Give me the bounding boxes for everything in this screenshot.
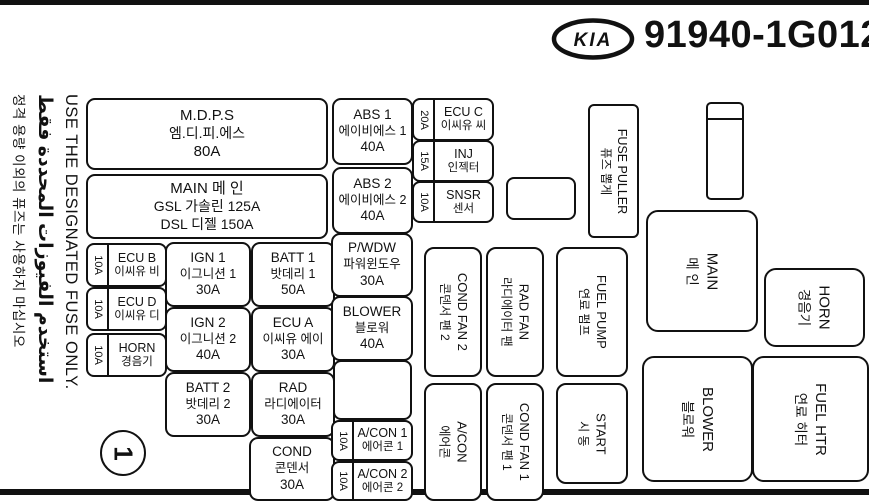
fuse-name: COND bbox=[272, 444, 312, 461]
relay-korean: 에어콘 bbox=[438, 425, 452, 458]
fuse-horn: 10A HORN 경음기 bbox=[86, 333, 167, 377]
fuse-ecu-a: ECU A 이씨유 에이 30A bbox=[251, 307, 335, 372]
fuse-ecu-c: 20A ECU C 이씨유 씨 bbox=[412, 98, 494, 141]
fuse-name: INJ bbox=[454, 147, 473, 162]
relay-korean: 콘덴서 팬 2 bbox=[438, 283, 452, 341]
fuse-korean: 밧데리 1 bbox=[271, 267, 316, 283]
amp-rating: 20A bbox=[414, 100, 435, 139]
relay-korean: 메 인 bbox=[685, 257, 700, 286]
fuse-cond: COND 콘덴서 30A bbox=[249, 437, 335, 501]
fuse-ecu-d: 10A ECU D 이씨유 디 bbox=[86, 287, 167, 331]
fuse-name: A/CON 1 bbox=[357, 426, 407, 441]
empty-fuse-slot bbox=[333, 360, 412, 420]
fuse-mdps: M.D.P.S 엠.디.피.에스 80A bbox=[86, 98, 328, 170]
fuse-amp: 30A bbox=[360, 273, 384, 290]
fuse-korean: 이그니션 1 bbox=[180, 267, 236, 283]
fuse-name: A/CON 2 bbox=[357, 467, 407, 482]
relay-name: FUEL PUMP bbox=[594, 275, 609, 349]
fuse-acon2: 10A A/CON 2 에어콘 2 bbox=[331, 461, 413, 501]
fuse-korean: 경음기 bbox=[121, 356, 153, 370]
relay-cond-fan-2: COND FAN 2 콘덴서 팬 2 bbox=[424, 247, 482, 377]
relay-name: HORN bbox=[816, 285, 833, 329]
relay-korean: 블로워 bbox=[680, 400, 695, 437]
fuse-korean: 이씨유 비 bbox=[114, 266, 160, 280]
kia-logo-text: KIA bbox=[574, 30, 613, 51]
fuse-korean: 에어콘 2 bbox=[362, 482, 403, 496]
fuse-korean: 에어콘 1 bbox=[362, 441, 403, 455]
fuse-main: MAIN 메 인 GSL 가솔린 125A DSL 디젤 150A bbox=[86, 174, 328, 239]
fuse-korean: 이그니션 2 bbox=[180, 332, 236, 348]
fuse-rad: RAD 라디에이터 30A bbox=[251, 372, 335, 437]
fuse-ecu-b: 10A ECU B 이씨유 비 bbox=[86, 243, 167, 287]
amp-rating: 10A bbox=[88, 335, 109, 375]
fuse-amp: 40A bbox=[360, 139, 384, 156]
relay-korean: 시 동 bbox=[577, 421, 591, 446]
circled-1-marker: 1 bbox=[100, 430, 146, 476]
amp-rating: 10A bbox=[88, 289, 109, 329]
fuse-name: SNSR bbox=[446, 188, 481, 203]
amp-rating: 10A bbox=[333, 422, 354, 459]
fuse-box-diagram: KIA 91940-1G012 USE THE DESIGNATED FUSE … bbox=[0, 0, 869, 502]
fuse-korean: 파워윈도우 bbox=[343, 257, 401, 273]
fuse-name: MAIN 메 인 bbox=[170, 180, 243, 199]
fuse-name: BATT 2 bbox=[186, 380, 231, 397]
fuse-name: RAD bbox=[279, 380, 308, 397]
relay-name: COND FAN 1 bbox=[517, 403, 532, 481]
empty-relay-slot bbox=[506, 177, 576, 220]
fuse-snsr: 10A SNSR 센서 bbox=[412, 181, 494, 223]
fuse-abs2: ABS 2 에이비에스 2 40A bbox=[332, 167, 413, 234]
relay-name: FUEL HTR bbox=[812, 383, 829, 456]
relay-korean: 연료 히터 bbox=[794, 392, 809, 445]
relay-name: RAD FAN bbox=[517, 284, 532, 340]
warning-korean: 정격 용량 이외의 퓨즈는 사용하지 마십시오 bbox=[5, 94, 31, 406]
relay-main: MAIN 메 인 bbox=[646, 210, 758, 332]
relay-rad-fan: RAD FAN 라디에이터 팬 bbox=[486, 247, 544, 377]
fuse-name: IGN 1 bbox=[190, 250, 225, 267]
fuse-acon1: 10A A/CON 1 에어콘 1 bbox=[331, 420, 413, 461]
relay-fuel-pump: FUEL PUMP 연료 펌프 bbox=[556, 247, 628, 377]
fuse-name: HORN bbox=[119, 341, 156, 356]
amp-rating: 15A bbox=[414, 142, 435, 180]
fuse-batt1: BATT 1 밧데리 1 50A bbox=[251, 242, 335, 307]
fuse-amp: 40A bbox=[360, 336, 384, 353]
relay-name: MAIN bbox=[704, 252, 721, 290]
page-marker-number: 1 bbox=[108, 446, 139, 460]
relay-name: A/CON bbox=[455, 421, 470, 462]
fuse-korean: 밧데리 2 bbox=[186, 397, 231, 413]
top-border-line bbox=[0, 0, 869, 5]
fuse-name: BATT 1 bbox=[271, 250, 316, 267]
fuse-amp: 40A bbox=[196, 347, 220, 364]
part-number: 91940-1G012 bbox=[644, 14, 869, 57]
fuse-name: P/WDW bbox=[348, 240, 396, 257]
fuse-korean: 블로워 bbox=[355, 321, 390, 337]
relay-korean: 라디에이터 팬 bbox=[500, 277, 514, 347]
relay-name: BLOWER bbox=[699, 386, 716, 451]
fuse-ign1: IGN 1 이그니션 1 30A bbox=[165, 242, 251, 307]
fuse-puller-korean: 퓨즈 뽑게 bbox=[599, 147, 613, 195]
fuse-amp: 30A bbox=[281, 412, 305, 429]
fuse-korean: 라디에이터 bbox=[264, 397, 322, 413]
fuse-korean: 에이비에스 1 bbox=[339, 124, 407, 140]
fuse-korean: 이씨유 에이 bbox=[263, 332, 324, 348]
fuse-korean: 센서 bbox=[453, 203, 474, 217]
amp-rating: 10A bbox=[88, 245, 109, 285]
fuse-abs1: ABS 1 에이비에스 1 40A bbox=[332, 98, 413, 165]
fuse-ign2: IGN 2 이그니션 2 40A bbox=[165, 307, 251, 372]
relay-name: START bbox=[594, 413, 609, 454]
kia-logo: KIA bbox=[550, 16, 636, 67]
fuse-amp: 80A bbox=[194, 143, 221, 162]
warning-text: USE THE DESIGNATED FUSE ONLY. استخدم الف… bbox=[4, 94, 84, 406]
relay-korean: 경음기 bbox=[797, 289, 812, 326]
fuse-amp: 30A bbox=[281, 347, 305, 364]
fuse-batt2: BATT 2 밧데리 2 30A bbox=[165, 372, 251, 437]
relay-korean: 콘덴서 팬 1 bbox=[500, 413, 514, 471]
fuse-amp: 40A bbox=[360, 208, 384, 225]
relay-blower: BLOWER 블로워 bbox=[642, 356, 753, 482]
fuse-inj: 15A INJ 인젝터 bbox=[412, 140, 494, 182]
fuse-puller-name: FUSE PULLER bbox=[615, 128, 629, 213]
fuse-name: ECU A bbox=[273, 315, 314, 332]
relay-start: START 시 동 bbox=[556, 383, 628, 484]
fuse-name: ABS 1 bbox=[353, 107, 391, 124]
fuse-pwdw: P/WDW 파워윈도우 30A bbox=[331, 233, 413, 297]
amp-rating: 10A bbox=[414, 183, 435, 221]
fuse-korean: 이씨유 디 bbox=[114, 310, 160, 324]
relay-name: COND FAN 2 bbox=[455, 273, 470, 351]
fuse-korean: 에이비에스 2 bbox=[339, 193, 407, 209]
fuse-puller-cap-line bbox=[708, 118, 742, 120]
fuse-amp: 30A bbox=[196, 282, 220, 299]
fuse-blower: BLOWER 블로워 40A bbox=[331, 296, 413, 361]
fuse-korean: 인젝터 bbox=[448, 162, 480, 176]
warning-arabic: استخدم الفيوزات المحددة فقط bbox=[31, 94, 58, 406]
fuse-name: IGN 2 bbox=[190, 315, 225, 332]
relay-cond-fan-1: COND FAN 1 콘덴서 팬 1 bbox=[486, 383, 544, 501]
relay-acon: A/CON 에어콘 bbox=[424, 383, 482, 501]
fuse-gsl-rating: GSL 가솔린 125A bbox=[154, 198, 261, 216]
fuse-amp: 30A bbox=[196, 412, 220, 429]
warning-english: USE THE DESIGNATED FUSE ONLY. bbox=[58, 94, 84, 406]
fuse-name: BLOWER bbox=[343, 304, 402, 321]
relay-korean: 연료 펌프 bbox=[577, 288, 591, 336]
fuse-name: M.D.P.S bbox=[180, 107, 234, 126]
fuse-name: ECU B bbox=[118, 251, 156, 266]
fuse-name: ABS 2 bbox=[353, 176, 391, 193]
fuse-puller-label: FUSE PULLER 퓨즈 뽑게 bbox=[588, 104, 639, 238]
relay-fuel-htr: FUEL HTR 연료 히터 bbox=[752, 356, 869, 482]
relay-horn: HORN 경음기 bbox=[764, 268, 865, 347]
fuse-amp: 50A bbox=[281, 282, 305, 299]
fuse-puller-tool bbox=[706, 102, 744, 200]
fuse-korean: 콘덴서 bbox=[275, 461, 310, 477]
fuse-dsl-rating: DSL 디젤 150A bbox=[161, 216, 254, 234]
fuse-korean: 이씨유 씨 bbox=[441, 120, 487, 134]
amp-rating: 10A bbox=[333, 463, 354, 499]
fuse-name: ECU C bbox=[444, 105, 483, 120]
fuse-name: ECU D bbox=[118, 295, 157, 310]
fuse-korean: 엠.디.피.에스 bbox=[169, 125, 245, 143]
fuse-amp: 30A bbox=[280, 477, 304, 494]
